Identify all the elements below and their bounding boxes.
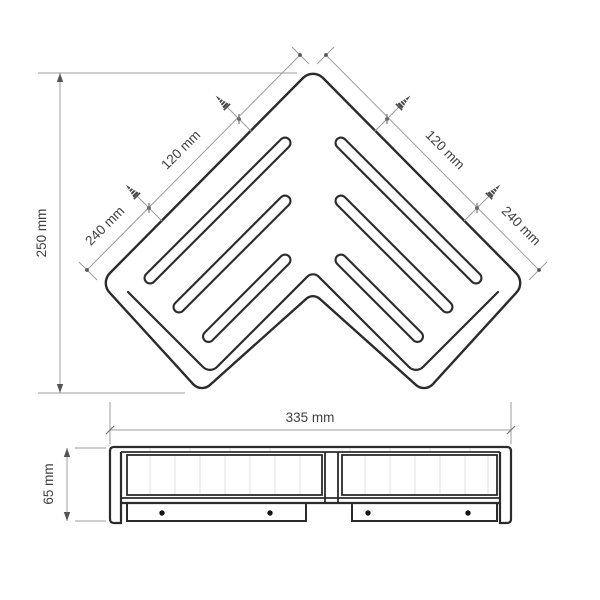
dim-points [85, 53, 541, 272]
screw-holes [159, 510, 470, 515]
screw-icon [396, 93, 414, 111]
arrowhead-down [57, 384, 63, 393]
screw-hole [365, 510, 370, 515]
screw-icon [213, 93, 231, 111]
dim-label-side-height: 65 mm [41, 463, 56, 504]
drain-slots-inner [150, 143, 476, 337]
wing-texture [150, 456, 488, 494]
side-view: 335 mm 65 mm [41, 402, 515, 523]
dim-label-screw-spacing-left: 120 mm [158, 127, 203, 172]
dim-label-depth-right: 240 mm [499, 203, 544, 248]
extension-lines [79, 47, 547, 280]
corner-shelf-drawing: 240 mm 120 mm 120 mm 240 mm 250 mm [0, 0, 600, 600]
arrowhead-up [64, 448, 70, 457]
dim-label-screw-spacing-right: 120 mm [423, 127, 468, 172]
side-right-skirt [352, 503, 497, 521]
dim-label-overall-height: 250 mm [34, 209, 49, 258]
drain-slots-outer [150, 143, 476, 337]
top-view: 240 mm 120 mm 120 mm 240 mm 250 mm [34, 47, 547, 393]
arrowhead-down [64, 512, 70, 521]
arrowhead-up [57, 73, 63, 82]
screw-hole [267, 510, 272, 515]
screw-icon [486, 182, 504, 200]
side-right-end-plate [500, 450, 511, 523]
screw-hole [465, 510, 470, 515]
technical-drawing-canvas: 240 mm 120 mm 120 mm 240 mm 250 mm [0, 0, 600, 600]
dim-ticks [149, 114, 477, 213]
top-view-dimensions: 240 mm 120 mm 120 mm 240 mm 250 mm [34, 47, 547, 393]
screw-icon [123, 182, 141, 200]
screw-hole [159, 510, 164, 515]
rim-bend-line [128, 274, 498, 370]
side-left-skirt [127, 503, 306, 521]
dim-label-depth-left: 240 mm [82, 203, 127, 248]
side-top-rail [110, 447, 511, 451]
top-view-outline [106, 74, 520, 388]
side-left-end-plate [110, 450, 121, 523]
dim-label-overall-width: 335 mm [286, 410, 335, 425]
